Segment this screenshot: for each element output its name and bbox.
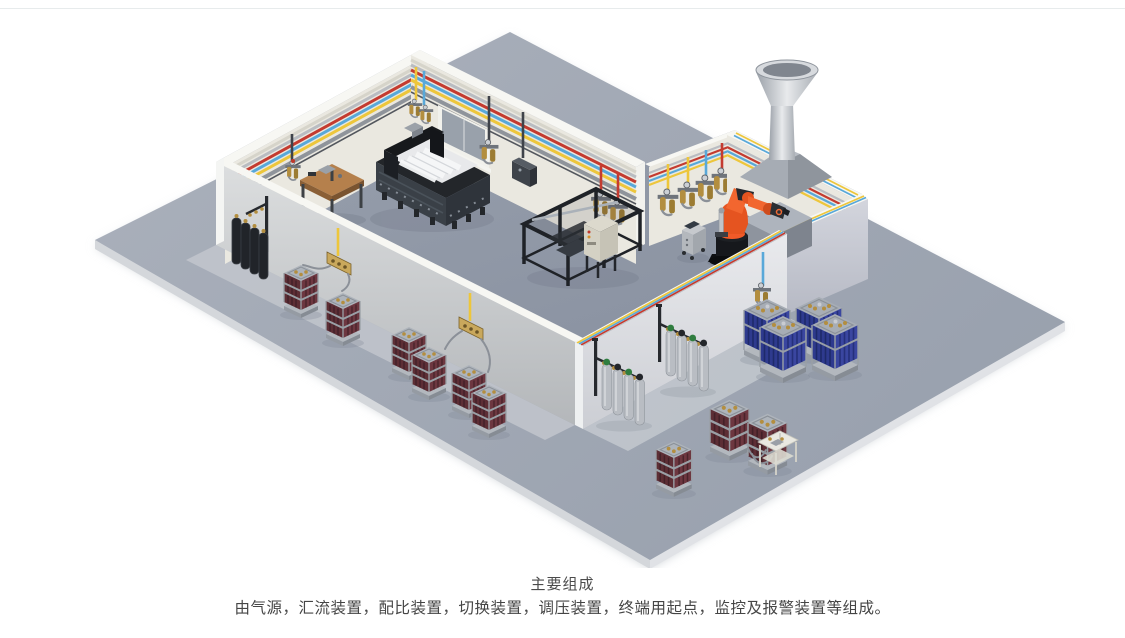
- exhaust-hood-chimney: [740, 60, 832, 199]
- caption-description: 由气源，汇流装置，配比装置，切换装置，调压装置，终端用起点，监控及报警装置等组成…: [0, 596, 1125, 618]
- valve-knob: [291, 159, 295, 163]
- caption-title: 主要组成: [0, 573, 1125, 594]
- page: 主要组成 由气源，汇流装置，配比装置，切换装置，调压装置，终端用起点，监控及报警…: [0, 0, 1125, 638]
- top-divider: [0, 8, 1125, 9]
- isometric-factory-illustration: [0, 12, 1125, 568]
